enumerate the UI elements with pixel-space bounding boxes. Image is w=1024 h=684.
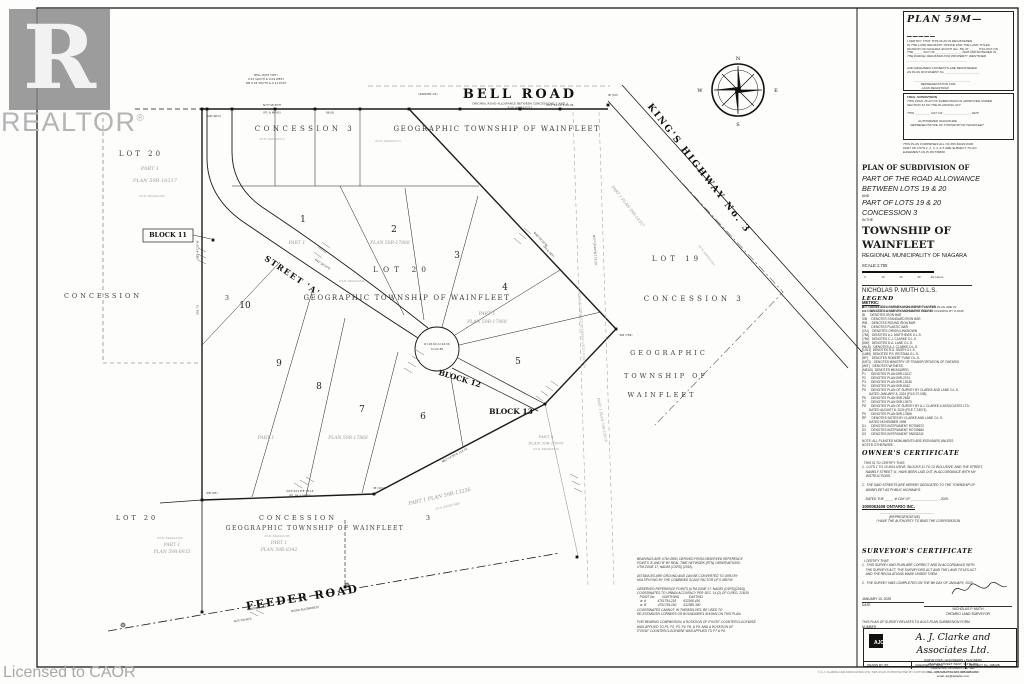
survey-monument-icon [459,108,462,111]
plan-reference-label: PART 1 [163,542,180,548]
survey-annotation: N73°50'40"E [234,617,253,624]
survey-annotation: N73°54'40"E 60.96 [547,103,574,107]
survey-monument-icon [201,108,204,111]
lot-number: 2 [391,225,397,235]
registered-mark: ® [137,113,146,124]
survey-monument-icon [274,108,277,111]
plan-reference-label: PART 1 [288,240,305,246]
surveyor-name: NICHOLAS P. MUTH O.L.S. [862,285,972,295]
plan-reference-label: PART 1 [140,166,159,172]
lot-number: 5 [515,357,521,367]
title-block: PLAN OF SUBDIVISION OF PART OF THE ROAD … [862,163,1014,314]
owners-cert-heading: OWNER'S CERTIFICATE [862,450,1017,459]
lot-number: 1 [300,215,306,225]
area-label: LOT 20 [116,514,158,522]
survey-annotation: 155.73 [196,305,200,315]
survey-annotation: R=18.00 A=24.56 [424,342,450,346]
area-label: CONCESSION 3 [644,295,744,303]
title-line3: BETWEEN LOTS 19 & 20 [862,184,1014,194]
plan-reference-label: PLAN 59R-10217 [132,178,178,184]
registration-text: I CERTIFY THAT THIS PLAN IS REGISTERED I… [907,40,1010,91]
plan-reference-label: P.I.N. 64029-0600 [434,501,461,511]
legend-heading: LEGEND [862,296,1017,304]
pin-note: THIS PLAN COMPRISES ALL OF PIN 64029-030… [903,143,1018,155]
plan-reference-label: PART 6 [538,434,554,439]
title-line7: IN THE [862,218,1014,223]
checked-by: CHECKED BY: NPM [912,662,966,669]
survey-monument-icon [615,328,618,331]
compass-letter: E [774,88,778,94]
legend: LEGEND ■ DENOTES A SURVEY MONUMENT PLANT… [862,296,1017,447]
plan-reference-label: PART 1 [257,435,274,441]
plan-reference-label: PART 1 PLAN 59R-13970 [596,396,608,442]
survey-annotation: SIB (WLS) [207,114,221,118]
area-label: GEOGRAPHIC TOWNSHIP OF WAINFLEET [303,294,510,302]
survey-monument-icon [373,493,376,496]
signature-row: JANUARY 10, 2025 DATE NICHOLAS P. MUTH O… [862,597,1017,616]
area-label: CONCESSION [64,292,142,300]
realtor-wordmark: REALTOR® [1,107,145,138]
license-text: Licensed to CAOR [3,664,136,682]
drawn-by: DRAWN BY: BT [864,662,912,669]
road-sublabel: (ROAD ALLOWANCE) [290,605,319,613]
plan-reference-label: PLAN 59R-17868 [369,240,410,246]
owners-certificate: OWNER'S CERTIFICATE THIS IS TO CERTIFY T… [862,450,1017,524]
area-label: GEOGRAPHIC TOWNSHIP OF WAINFLEET [393,125,600,133]
survey-annotation: (P1 & MEAS) [263,111,280,115]
survey-annotation: SIB (784) [620,333,633,337]
registration-panel: PLAN 59M—_____ I CERTIFY THAT THIS PLAN … [903,11,1014,91]
approval-text: THIS FINAL PLAN OF SUBDIVISION IS APPROV… [907,100,1010,128]
road-label: BELL ROAD [463,87,577,102]
drawing-info-row: DRAWN BY: BT CHECKED BY: NPM PROJECT No.… [864,661,1018,669]
scale-tick: 0 [856,276,874,280]
area-label: CONCESSION 3 [255,125,355,133]
survey-annotation: SIB (RF) [206,491,217,495]
survey-monument-icon [212,239,215,242]
signer-title: ONTARIO LAND SURVEYOR [924,612,1012,616]
survey-annotation: SIB 0.18 SOUTH & 0.12 EAST [246,81,287,85]
bearing-notes: BEARINGS ARE UTM GRID, DERIVED FROM OBSE… [637,557,855,633]
lot-number: 8 [316,382,322,392]
plan-reference-label: PLAN 59R-8935 [153,549,191,555]
project-no: PROJECT No. 19822B [966,662,1018,669]
plan-reference-label: PLAN 59R-17868 [327,435,368,441]
plan-reference-label: PLAN 59R-13970 [527,441,564,446]
scale-bar-labels: 010203040 metres [862,276,1014,280]
scale-bar [862,271,1014,274]
lot-number: 10 [239,301,251,311]
plan-reference-label: P.I.N. 64029-0712 [258,137,284,141]
survey-annotation: N42°36'10"E [314,258,331,271]
survey-monument-icon [519,108,522,111]
surveyors-cert-heading: SURVEYOR'S CERTIFICATE [862,548,1017,557]
survey-monument-icon [201,611,204,614]
survey-plan-sheet: LOT 20CONCESSION3CONCESSION 3GEOGRAPHIC … [0,0,1024,684]
road-sublabel: (KNOWN AS) [418,92,437,96]
plan-reference-label: P.I.N. 64029-0192 [138,194,164,198]
plan-reference-label: P.I.N. 64029-0470 [532,447,558,451]
area-label: LOT 20 [119,150,163,158]
survey-annotation: N73°46'30"E [263,103,281,107]
surveyors-certificate: SURVEYOR'S CERTIFICATE I CERTIFY THAT: 1… [862,548,1017,629]
reference-point-cross [120,622,126,628]
firm-title-box: AJC A. J. Clarke and Associates Ltd. SUR… [863,628,1017,667]
survey-annotation: N62°14'50"E 114.52 [441,447,468,464]
plan-reference-label: PART 1 [270,540,287,546]
firm-email: email: ajc@ajclarke.com [890,674,1016,678]
survey-annotation: IB (OU) [608,93,618,97]
survey-annotation: N73°22'10"E 73.15 [287,489,314,493]
legend-note: NOTE: ALL PLANTED MONUMENTS ARE IRON BAR… [862,439,1017,447]
plan-reference-label: P.I.N. 64029-0306 [338,279,364,283]
firm-name: A. J. Clarke and Associates Ltd. [890,632,1016,658]
lot-number: 7 [359,405,365,415]
survey-monument-icon [314,108,317,111]
area-label: LOT 19 [652,255,702,263]
survey-monument-icon [408,108,411,111]
scale-tick: 10 [874,276,892,280]
compass-letter: N [736,56,741,62]
plan-reference-label: P.I.N. 64029-0195 [263,534,289,538]
survey-monument-icon [576,556,579,559]
plan-reference-label: P.I.N. 64029-0194 [156,536,182,540]
copyright-line: © A.J. CLARKE AND ASSOCIATES LTD. THIS P… [818,670,976,674]
block-label: BLOCK 11 [149,231,187,239]
plan-reference-label: PLAN 59R-17868 [466,319,507,325]
lot-number: 3 [454,251,460,261]
scale-tick: 20 [892,276,910,280]
survey-monument-icon [359,108,362,111]
scale-label: SCALE 1:750 [862,263,1014,269]
municipality: REGIONAL MUNICIPALITY OF NIAGARA [862,253,1014,261]
survey-monument-icon [206,108,209,111]
survey-monument-icon [201,499,204,502]
lot-number: 4 [502,283,508,293]
area-label: TOWNSHIP OF [624,372,708,380]
firm-monogram: AJC [872,636,886,650]
plan-reference-label: PART 1 [478,311,495,317]
lot-number: 6 [420,412,426,422]
title-line2: PART OF THE ROAD ALLOWANCE [862,174,1014,184]
area-label: WAINFLEET [628,391,697,399]
block-label: BLOCK 13 [489,407,533,416]
title-line1: PLAN OF SUBDIVISION OF [862,163,1014,172]
area-label: 3 [426,514,430,522]
scale-tick: 30 [910,276,928,280]
title-line6: CONCESSION 3 [862,208,1014,218]
realtor-logo-letter: R [23,13,96,101]
survey-annotation: C=22.80 [431,347,444,351]
realtor-logo: R [9,9,110,110]
approval-panel: FINAL SUBDIVISION THIS FINAL PLAN OF SUB… [903,93,1014,140]
plan-reference-label: PLAN 59R-8342 [260,547,298,553]
block-label: BLOCK 12 [438,368,482,389]
survey-annotation: N17°10'40"W 172.24 [592,235,598,265]
area-label: CONCESSION [259,514,337,522]
legend-entries: ■ DENOTES A SURVEY MONUMENT PLANTED □ DE… [862,306,1017,437]
survey-annotation: (P3, P4 & MEAS) [289,494,312,498]
compass-letter: W [697,88,703,94]
area-label: LOT 20 [373,265,431,274]
survey-monument-icon [559,108,562,111]
survey-annotation: N16°47'20"W [196,240,200,259]
survey-monument-icon [544,403,547,406]
title-line5: PART OF LOTS 19 & 20 [862,198,1014,208]
plan-reference-label: PART 1 PLAN 59R-13236 [407,487,472,508]
survey-annotation: IB (1021) [374,486,387,490]
area-label: GEOGRAPHIC TOWNSHIP OF WAINFLEET [226,525,404,532]
township-title: TOWNSHIP OF WAINFLEET [862,224,1014,252]
area-label: 3 [225,294,229,302]
north-arrow-icon [712,64,764,116]
plan-reference-label: PART 1 PLAN 59R-14557 [610,184,646,228]
plan-number-title: PLAN 59M—_____ [907,14,1010,40]
compass-letter: S [736,122,740,128]
area-label: GEOGRAPHIC [630,349,708,357]
plan-reference-label: ROAD ALLOWANCE BETWEEN LOTS 19 AND 20 [577,291,586,368]
map-monuments [120,104,617,628]
date-label: DATE [862,603,924,607]
survey-annotation: 86.06 [326,111,334,115]
plan-reference-label: P.I.N. 64029-0713 [374,139,400,143]
lot-number: 9 [276,359,282,369]
map-labels: LOT 20CONCESSION3CONCESSION 3GEOGRAPHIC … [64,56,778,623]
survey-monument-icon [607,104,610,107]
survey-annotation: (P9 & SET) [542,245,555,259]
survey-monument-icon [231,108,234,111]
scale-tick: 40 metres [928,276,946,280]
